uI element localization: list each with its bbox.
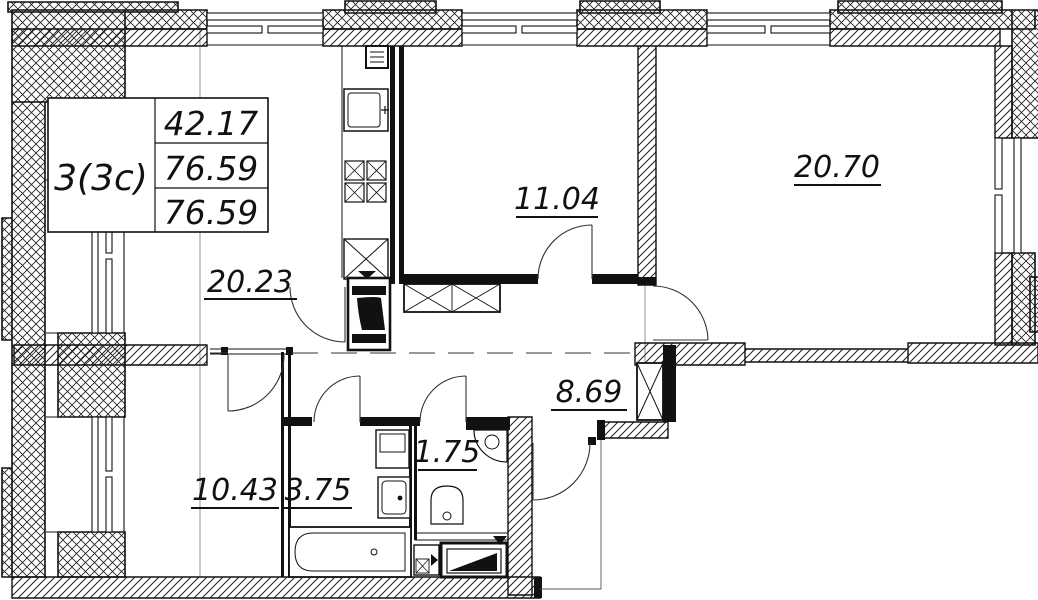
room-bedroom-small [404, 46, 638, 274]
floor-plan-page: 3(3c) 42.17 76.59 76.59 20.23 11.04 20.7… [0, 0, 1038, 600]
window-glazing [106, 417, 112, 471]
window-glazing [106, 477, 112, 532]
floor-plan-canvas: 3(3c) 42.17 76.59 76.59 20.23 11.04 20.7… [0, 0, 1038, 600]
kitchen-sink [344, 89, 389, 131]
label-hall: 8.69 [556, 375, 623, 410]
label-wc: 1.75 [414, 435, 481, 470]
window-glazing [207, 26, 262, 33]
label-bedroom-bottom: 10.43 [192, 473, 278, 508]
window-glazing [462, 26, 516, 33]
window-glazing [995, 195, 1002, 253]
window-glazing [207, 13, 323, 20]
window-glazing [462, 13, 577, 20]
window-glazing [522, 26, 577, 33]
window-glazing [771, 26, 830, 33]
window-glazing [707, 26, 765, 33]
window-glazing [92, 417, 98, 532]
window-glazing [995, 138, 1002, 189]
label-bedroom-large: 20.70 [794, 150, 880, 185]
kitchen-meter-box [366, 46, 388, 68]
room-bedroom-large [656, 46, 995, 343]
label-living-kitchen: 20.23 [207, 265, 293, 300]
room-bedroom-bottom [125, 365, 281, 577]
window-glazing [106, 259, 112, 333]
window-glazing [1014, 138, 1021, 253]
vent-shaft [637, 363, 663, 420]
window-glazing [268, 26, 323, 33]
label-bathroom: 3.75 [285, 473, 352, 508]
window-glazing [707, 13, 830, 20]
label-bedroom-small: 11.04 [514, 182, 600, 217]
